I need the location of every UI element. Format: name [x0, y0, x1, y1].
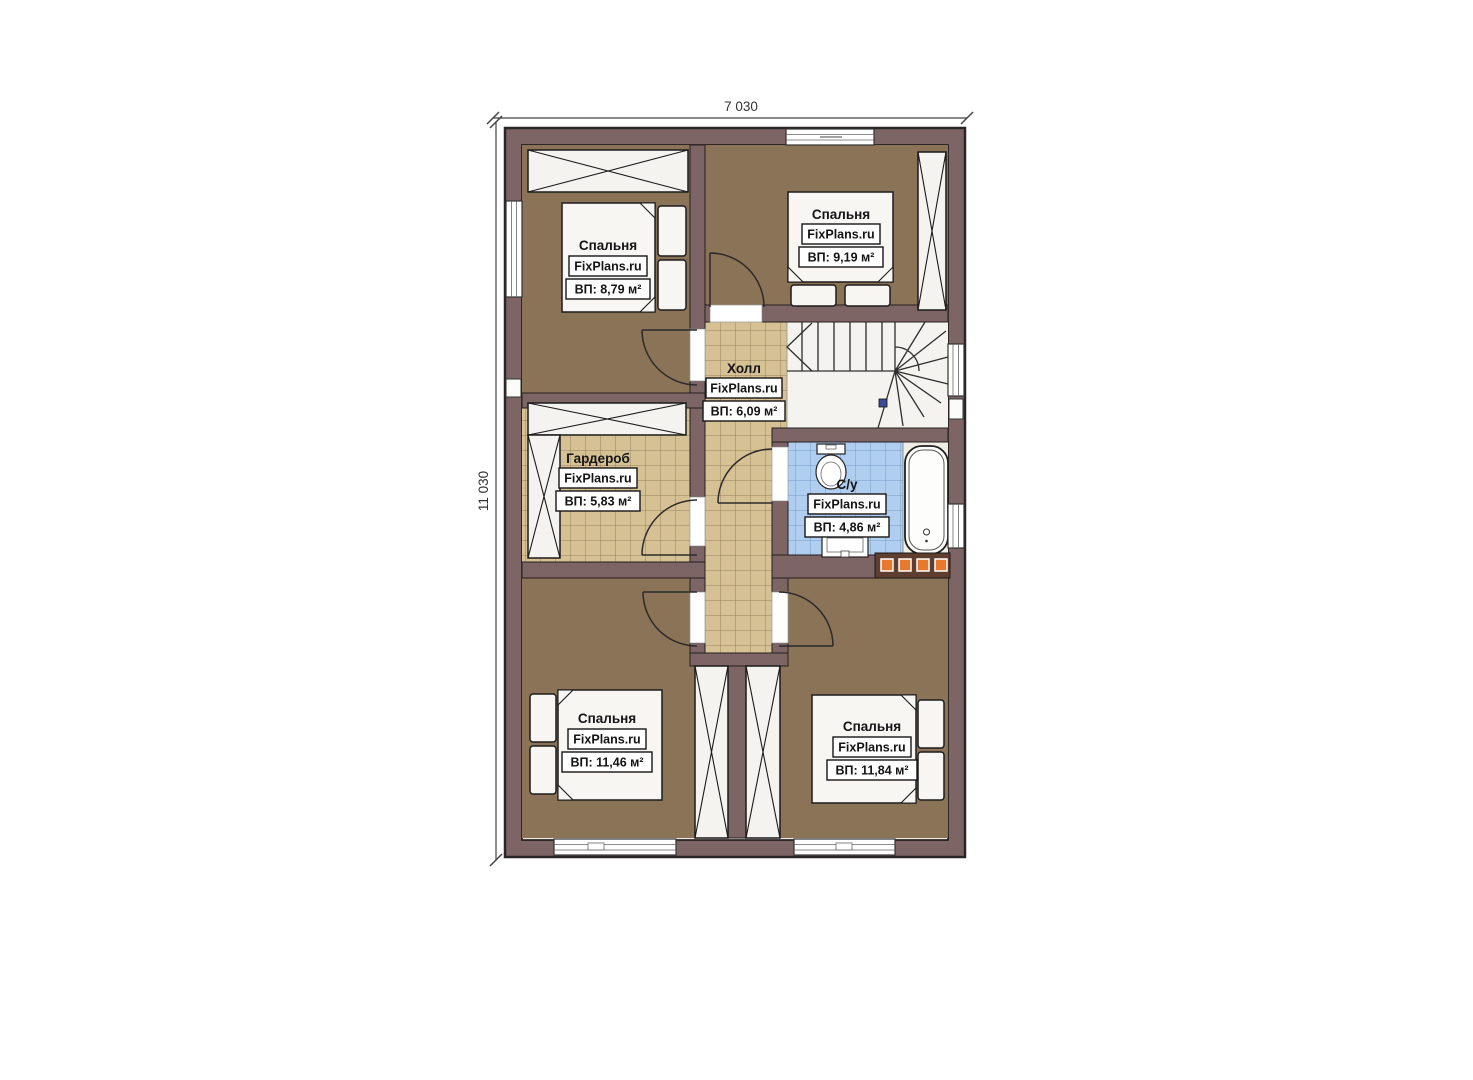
bed-pillow: [918, 752, 944, 800]
area-text: ВП: 8,79 м²: [575, 283, 642, 297]
window-frame: [506, 201, 522, 297]
window-frame: [948, 504, 964, 548]
dimension-width-label: 7 030: [724, 99, 758, 114]
window-bottom-right: [794, 839, 895, 855]
closet-wardrobe-top: [528, 403, 686, 435]
brand-text: FixPlans.ru: [807, 228, 874, 242]
door-opening: [690, 497, 705, 546]
area-text: ВП: 5,83 м²: [565, 495, 632, 509]
area-text: ВП: 11,84 м²: [835, 764, 908, 778]
toilet-button: [826, 445, 836, 449]
bed-pillow: [845, 285, 890, 306]
radiator: [875, 553, 950, 578]
dimension-left: 11 030: [476, 116, 502, 866]
window-right-bathroom: [948, 504, 964, 548]
wall: [728, 666, 746, 838]
area-text: ВП: 11,46 м²: [570, 756, 643, 770]
wall: [522, 562, 705, 578]
brand-text: FixPlans.ru: [813, 498, 880, 512]
window-bottom-left: [554, 839, 676, 855]
wall: [690, 653, 788, 666]
window-frame: [554, 839, 676, 855]
closet-wardrobe-left: [528, 435, 560, 558]
wall: [772, 428, 948, 442]
wall: [705, 305, 710, 322]
closet-bottom-middle-left: [695, 666, 728, 838]
door-opening: [690, 592, 705, 643]
sink-tap: [841, 551, 849, 557]
dimension-height-label: 11 030: [476, 471, 491, 511]
bed-pillow: [658, 260, 686, 310]
room-label-wardrobe: Гардероб FixPlans.ru ВП: 5,83 м²: [556, 451, 640, 511]
brand-text: FixPlans.ru: [574, 260, 641, 274]
bed-pillow: [791, 285, 836, 306]
floor-plan-canvas: Спальня FixPlans.ru ВП: 8,79 м² Спальня …: [0, 0, 1473, 1080]
area-text: ВП: 6,09 м²: [711, 405, 778, 419]
room-name: С/у: [836, 477, 858, 492]
closet-bottom-middle-right: [746, 666, 780, 838]
wall: [690, 145, 705, 329]
closet-top-left: [528, 150, 688, 192]
room-name: Спальня: [843, 719, 901, 734]
window-left: [506, 201, 522, 297]
door-opening: [710, 305, 762, 322]
brand-text: FixPlans.ru: [838, 741, 905, 755]
radiator-cell: [917, 559, 929, 571]
bed-pillow: [918, 700, 944, 748]
room-name: Гардероб: [566, 451, 630, 466]
brand-text: FixPlans.ru: [564, 472, 631, 486]
radiator-cell: [935, 559, 947, 571]
dimension-top: 7 030: [487, 99, 973, 124]
floor-hall-tiles-lower: [705, 428, 772, 658]
room-name: Спальня: [578, 711, 636, 726]
area-text: ВП: 9,19 м²: [808, 251, 875, 265]
brand-text: FixPlans.ru: [710, 382, 777, 396]
bathtub-icon: [905, 446, 948, 554]
window-tick: [588, 843, 604, 850]
stair-marker: [879, 399, 887, 407]
bed-pillow: [530, 746, 556, 794]
wall-niche-right: [949, 399, 963, 419]
room-name: Спальня: [579, 238, 637, 253]
door-opening: [772, 592, 788, 643]
floor-stairwell: [787, 322, 948, 428]
room-name: Холл: [727, 361, 761, 376]
radiator-cell: [899, 559, 911, 571]
room-name: Спальня: [812, 207, 870, 222]
bathtub-faucet-dot: [925, 540, 928, 543]
bathtub-outer: [905, 446, 948, 554]
wall-niche-left: [506, 379, 521, 397]
radiator-cell: [881, 559, 893, 571]
bed-pillow: [658, 206, 686, 256]
brand-text: FixPlans.ru: [573, 733, 640, 747]
window-top: [786, 129, 874, 145]
door-opening: [690, 329, 705, 381]
window-right-stairs: [948, 344, 964, 396]
door-opening: [772, 447, 788, 501]
floor-plan-page: Спальня FixPlans.ru ВП: 8,79 м² Спальня …: [0, 0, 1473, 1080]
closet-top-right: [918, 152, 946, 310]
area-text: ВП: 4,86 м²: [814, 521, 881, 535]
window-tick: [836, 843, 852, 850]
window-frame: [948, 344, 964, 396]
bed-pillow: [530, 694, 556, 742]
